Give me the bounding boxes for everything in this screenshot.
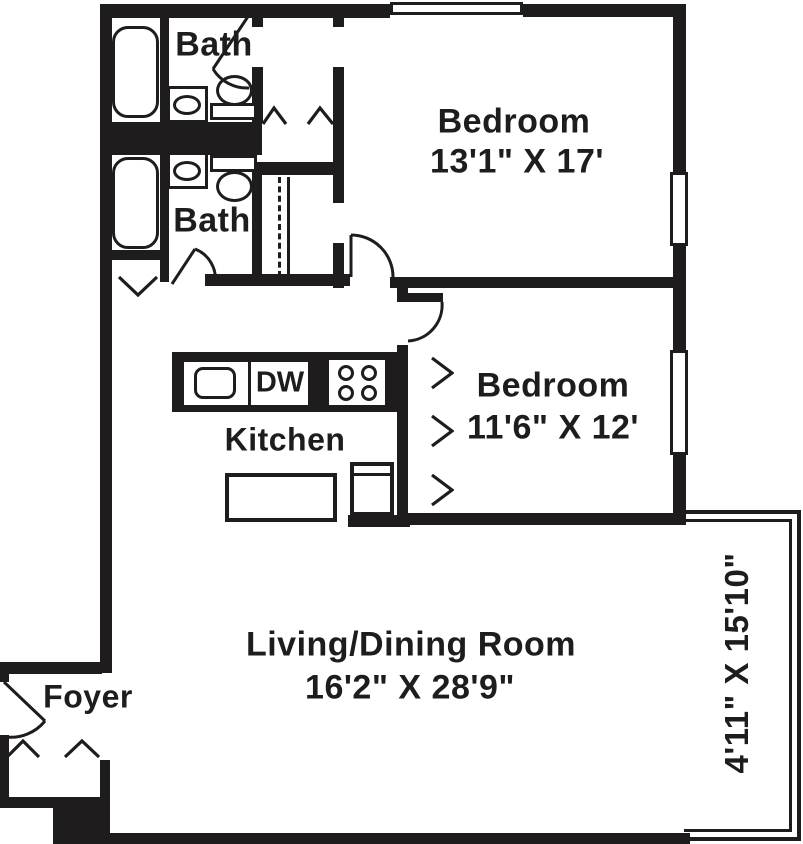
- wall-bedroom-middle-bottom: [408, 513, 686, 525]
- wall-hall-closet-top: [252, 162, 343, 175]
- toilet-tank: [210, 103, 257, 120]
- bedroom-middle-label: Bedroom: [477, 367, 630, 406]
- closet-chevron-up: [261, 105, 288, 126]
- wall-left: [100, 4, 112, 673]
- wall-right-middle: [673, 246, 686, 350]
- stove-burner: [361, 385, 377, 401]
- bath-top-label: Bath: [175, 26, 253, 65]
- wall-kitchen-right: [397, 345, 408, 527]
- refrigerator: [350, 462, 394, 516]
- wall-foyer-closet-right: [100, 760, 110, 797]
- bath-bottom-label: Bath: [173, 202, 251, 241]
- foyer-label: Foyer: [43, 679, 133, 716]
- sink-basin: [173, 95, 201, 115]
- closet-chevron-down: [116, 274, 160, 298]
- window-bedroom-middle: [670, 350, 688, 455]
- closet-chevron-right: [430, 473, 454, 507]
- wall-bedrooms-divider: [390, 277, 674, 288]
- closet-chevron-right: [430, 414, 454, 448]
- wall-right-upper: [673, 4, 686, 172]
- bedroom-middle-dimensions: 11'6" X 12': [467, 409, 639, 448]
- refrigerator-door-line: [350, 473, 394, 476]
- wall-hall-closet-left: [252, 162, 262, 277]
- wall-top-right: [523, 4, 686, 17]
- closet-chevron-up: [306, 105, 335, 126]
- stove: [329, 360, 385, 405]
- kitchen-label: Kitchen: [225, 422, 346, 459]
- living-dining-label: Living/Dining Room: [246, 626, 576, 665]
- wall-bedroom-top-left-mid: [333, 67, 344, 203]
- wall-bedroom-top-left-stub: [333, 4, 344, 27]
- stove-burner: [361, 365, 377, 381]
- bathtub: [112, 157, 159, 249]
- kitchen-sink: [194, 367, 236, 399]
- closet-chevron-right: [430, 356, 454, 390]
- door-bedroom-middle: [403, 297, 447, 345]
- closet-chevron-up: [5, 738, 41, 759]
- wall-foyer-top: [0, 662, 102, 674]
- bedroom-top-dimensions: 13'1" X 17': [430, 143, 604, 182]
- floor-plan: DW Bath Bath Bedroom 13'1" X 17' Bedroom…: [0, 0, 803, 844]
- balcony-dimensions: 4'11" X 15'10": [718, 553, 756, 774]
- stove-burner: [338, 385, 354, 401]
- wall-kitchen-bottom: [348, 515, 410, 527]
- sink-basin: [173, 161, 201, 181]
- stove-burner: [338, 365, 354, 381]
- bathtub: [112, 26, 159, 118]
- closet-rod-dashed-line: [278, 177, 281, 277]
- kitchen-island: [225, 473, 337, 522]
- toilet-tank: [210, 155, 257, 172]
- dishwasher-label: DW: [256, 367, 304, 400]
- toilet-bowl: [216, 171, 253, 202]
- window-bedroom-top: [670, 172, 688, 246]
- window-top: [390, 2, 523, 15]
- wall-step-block: [53, 797, 110, 844]
- wall-bottom: [110, 833, 690, 844]
- door-hall: [347, 231, 397, 281]
- closet-chevron-up: [63, 738, 101, 759]
- wall-bath-divider: [100, 122, 262, 155]
- closet-shelf-line: [287, 177, 290, 277]
- door-bath-bottom: [167, 238, 219, 288]
- living-dining-dimensions: 16'2" X 28'9": [305, 669, 515, 708]
- wall-niche-left: [100, 250, 112, 282]
- bedroom-top-label: Bedroom: [438, 103, 591, 142]
